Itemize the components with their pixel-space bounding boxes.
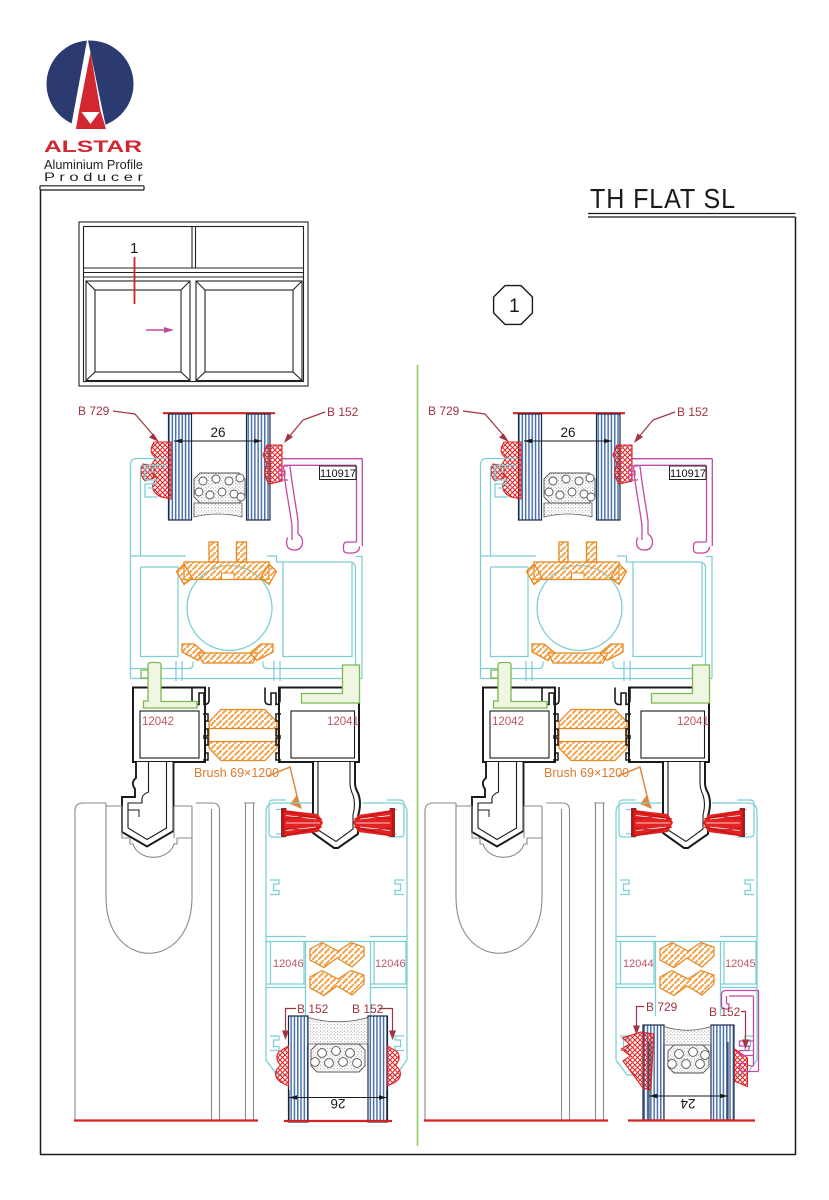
svg-text:P r o d u c e r: P r o d u c e r — [44, 170, 143, 184]
svg-text:12045: 12045 — [725, 958, 756, 970]
svg-text:110917: 110917 — [320, 468, 356, 480]
svg-text:12042: 12042 — [492, 716, 524, 728]
svg-text:B 729: B 729 — [646, 1000, 678, 1014]
svg-text:B 729: B 729 — [78, 404, 110, 418]
svg-text:12041: 12041 — [327, 716, 359, 728]
svg-text:B 152: B 152 — [709, 1005, 741, 1019]
svg-text:26: 26 — [210, 425, 225, 440]
svg-text:12046: 12046 — [273, 958, 304, 970]
svg-text:1: 1 — [130, 240, 138, 257]
svg-text:Brush 69×1200: Brush 69×1200 — [194, 766, 279, 780]
svg-text:12044: 12044 — [623, 958, 654, 970]
svg-text:12042: 12042 — [142, 716, 174, 728]
svg-text:TH FLAT SL: TH FLAT SL — [590, 183, 736, 214]
svg-text:B 152: B 152 — [352, 1002, 384, 1016]
svg-text:ALSTAR: ALSTAR — [44, 137, 142, 156]
svg-text:26: 26 — [330, 1096, 345, 1111]
svg-text:1: 1 — [509, 296, 520, 317]
svg-text:B 152: B 152 — [297, 1002, 329, 1016]
svg-text:12046: 12046 — [375, 958, 406, 970]
svg-text:12041: 12041 — [677, 716, 709, 728]
svg-text:24: 24 — [680, 1096, 696, 1111]
svg-text:B 152: B 152 — [327, 405, 359, 419]
